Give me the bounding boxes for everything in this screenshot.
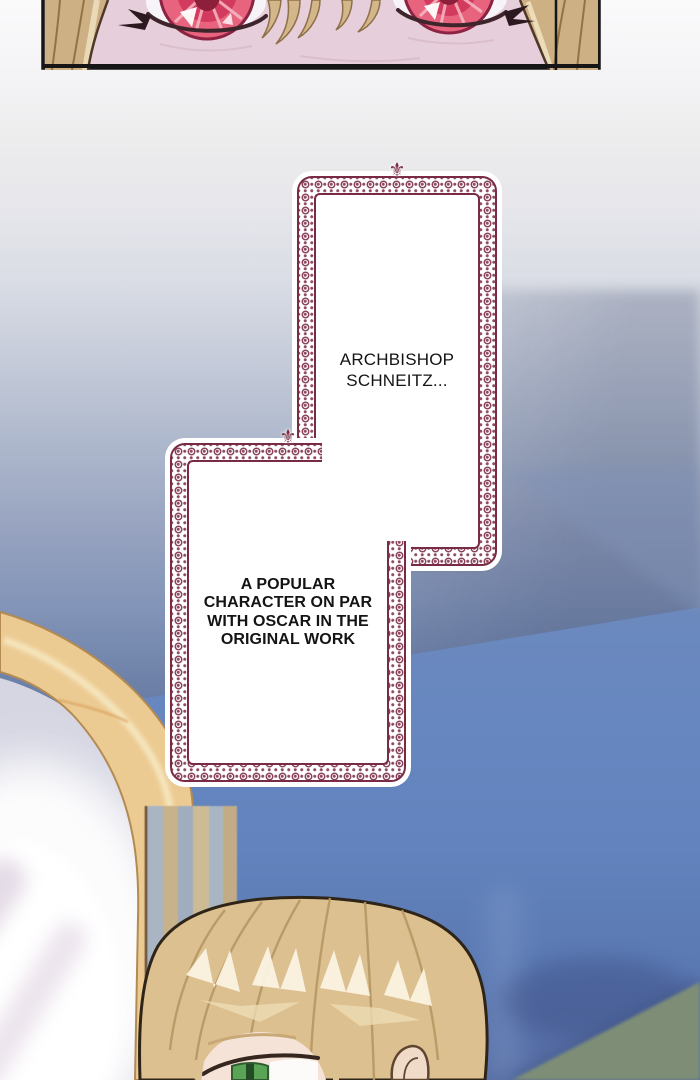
eyes-artwork: [0, 0, 700, 70]
hair-silhouette: [140, 897, 488, 1080]
caption-frame-inner: A POPULAR CHARACTER ON PAR WITH OSCAR IN…: [187, 460, 389, 765]
bubble-merge-patch: [364, 465, 410, 541]
caption-text-archbishop: ARCHBISHOP SCHNEITZ...: [340, 350, 454, 391]
light-wedge: [505, 466, 700, 614]
green-eye-pupil: [246, 1064, 254, 1080]
caption-line: A POPULAR: [204, 576, 372, 594]
top-panel-eyes-closeup: [0, 0, 700, 70]
caption-line: CHARACTER ON PAR: [204, 594, 372, 612]
caption-line: ORIGINAL WORK: [204, 631, 372, 649]
bubble-merge-patch: [322, 532, 368, 568]
caption-text-popular: A POPULAR CHARACTER ON PAR WITH OSCAR IN…: [204, 576, 372, 649]
character-head: [140, 897, 488, 1080]
manga-page: ⚜ ARCHBISHOP SCHNEITZ... ⚜ A POPULAR CHA…: [0, 0, 700, 1080]
frame-ornament-icon: ⚜: [386, 161, 408, 180]
caption-line: SCHNEITZ...: [340, 371, 454, 392]
frame-ornament-icon: ⚜: [277, 428, 299, 447]
eye-sclera: [270, 1059, 318, 1080]
caption-line: ARCHBISHOP: [340, 350, 454, 371]
caption-line: WITH OSCAR IN THE: [204, 613, 372, 631]
panel-bottom-border: [43, 64, 599, 68]
